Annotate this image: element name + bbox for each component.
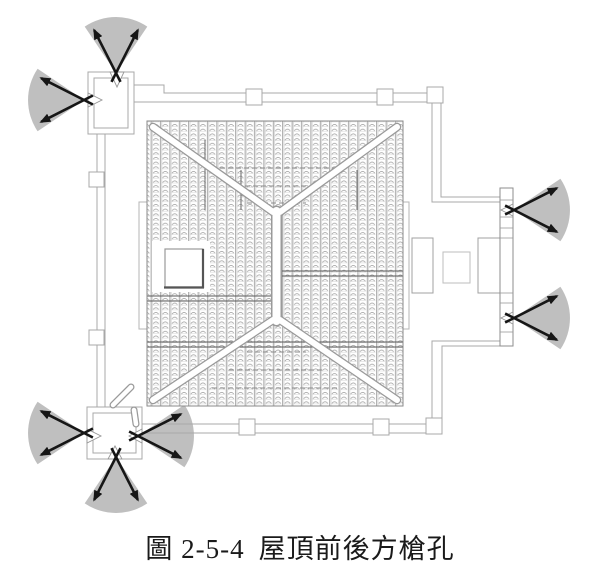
roof-plan-diagram: [0, 0, 600, 525]
field-of-fire-fan: [514, 179, 570, 242]
roof-opening: [152, 241, 210, 292]
field-of-fire-fan: [28, 402, 84, 465]
field-of-fire-fan: [514, 287, 570, 350]
field-of-fire-fan: [85, 17, 148, 73]
figure-page: 圖 2-5-4屋頂前後方槍孔: [0, 0, 600, 578]
southwest-corner-bastion: [87, 387, 142, 459]
east-entrance-porch: [412, 188, 513, 346]
figure-title: 屋頂前後方槍孔: [259, 534, 455, 564]
figure-number: 圖 2-5-4: [145, 534, 244, 564]
main-roof: [139, 121, 409, 406]
field-of-fire-fan: [138, 405, 194, 468]
field-of-fire-fan: [85, 457, 148, 513]
porch-pillar: [412, 238, 433, 293]
figure-caption: 圖 2-5-4屋頂前後方槍孔: [0, 527, 600, 566]
porch-pillar: [478, 238, 500, 293]
field-of-fire-fan: [28, 69, 84, 132]
porch-column-base: [443, 252, 470, 283]
